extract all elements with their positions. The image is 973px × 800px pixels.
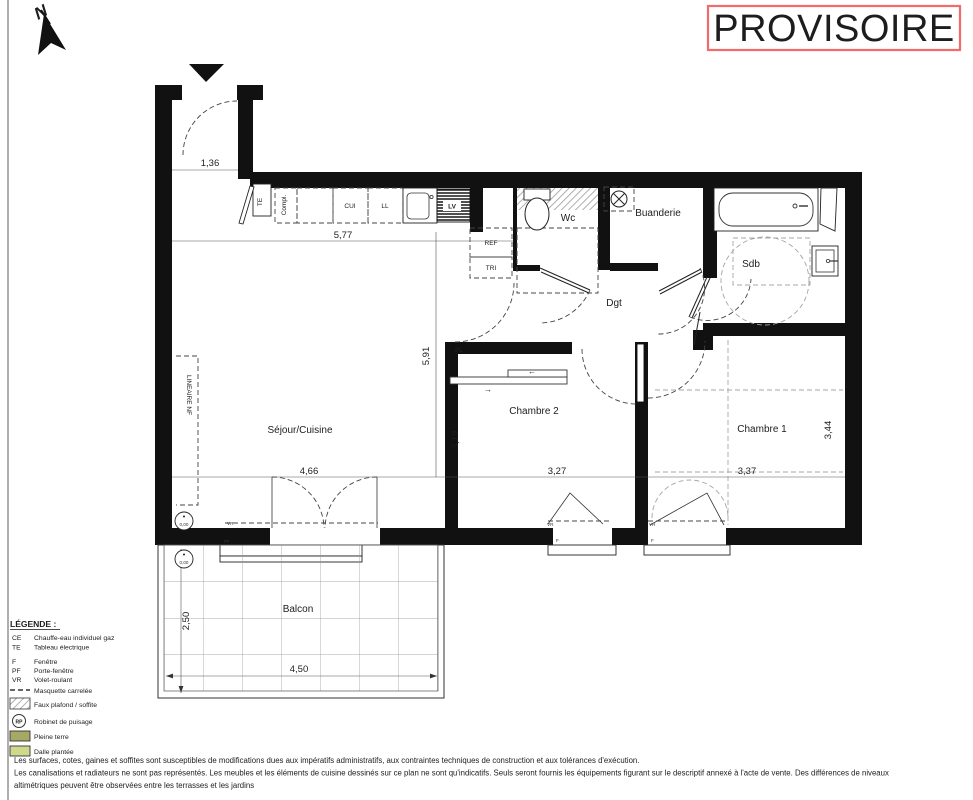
- pf-vr-label: VR: [227, 521, 234, 526]
- legend-label-pf: Porte-fenêtre: [34, 668, 74, 675]
- dim-balcon-w: 4,50: [290, 664, 309, 675]
- legend-rp-code: RP: [16, 720, 24, 726]
- provisoire-stamp: PROVISOIRE: [708, 6, 960, 50]
- chambre2-window: [548, 493, 616, 555]
- legend-label-vr: Volet-roulant: [34, 677, 72, 684]
- counter-unit: [297, 188, 333, 223]
- wc-area: [517, 188, 598, 323]
- dim-balcon-d: 2,50: [181, 612, 192, 631]
- placard-arrow-right: →: [484, 385, 492, 394]
- label-compl: Compl.: [281, 195, 288, 216]
- sink-basin: [407, 193, 429, 219]
- disclaimer-line-2: Les canalisations et radiateurs ne sont …: [14, 769, 889, 778]
- placard-arrow-left: ←: [528, 367, 536, 376]
- room-label-sdb: Sdb: [742, 259, 760, 270]
- legend-label-ce: Chauffe-eau individuel gaz: [34, 635, 115, 642]
- dim-entry: 1,36: [201, 158, 220, 169]
- room-label-chambre1: Chambre 1: [737, 424, 787, 435]
- room-label-dgt: Dgt: [606, 298, 622, 309]
- legend-label-f: Fenêtre: [34, 659, 58, 666]
- label-ll: LL: [381, 203, 389, 210]
- legend-label-dalle-plantee: Dalle plantée: [34, 749, 74, 756]
- label-cui: CUI: [344, 203, 355, 210]
- legend-code-pf: PF: [12, 668, 21, 675]
- sdb-duct: [820, 188, 837, 231]
- legend-pleine-terre-swatch: [10, 731, 30, 741]
- wc-floor-dash: [517, 228, 598, 293]
- room-label-balcon: Balcon: [283, 604, 314, 615]
- label-pl: PL: [455, 347, 463, 354]
- dim-chambre2-h: 3,19: [450, 431, 461, 450]
- entry-door-arc: [183, 101, 237, 155]
- label-te: TE: [257, 197, 264, 206]
- ch2-f-label: F: [556, 538, 559, 543]
- chambre1-window: [644, 493, 730, 555]
- dim-chambre2-w: 3,27: [548, 466, 567, 477]
- legend-dalle-plantee-swatch: [10, 746, 30, 756]
- placard-chambre2: [450, 370, 567, 384]
- legend-label-rp: Robinet de puisage: [34, 719, 93, 726]
- disclaimer-block: Les surfaces, cotes, gaines et soffites …: [14, 756, 889, 790]
- legend: LÉGENDE : CE Chauffe-eau individuel gaz …: [10, 619, 115, 756]
- legend-label-masquette: Masquette carrelée: [34, 688, 92, 695]
- turning-circle: [721, 237, 809, 325]
- label-lv: LV: [448, 204, 456, 211]
- label-tri: TRI: [486, 265, 497, 272]
- ch2-vr-label: VR: [547, 522, 554, 527]
- legend-code-te: TE: [12, 645, 21, 652]
- level-0-sejour: 0,00: [180, 522, 189, 527]
- dim-chambre1-h: 3,44: [823, 421, 834, 440]
- bathtub-inner: [719, 193, 813, 226]
- level-0-balcon: 0,00: [180, 560, 189, 565]
- balcony: [158, 545, 444, 698]
- floor-plan-sheet: N PROVISOIRE: [0, 0, 973, 800]
- room-label-wc: Wc: [561, 213, 575, 224]
- entry-door-leaf: [239, 186, 254, 224]
- label-ref: REF: [485, 240, 498, 247]
- dim-kitchen: 5,77: [334, 230, 353, 241]
- legend-title: LÉGENDE :: [10, 619, 56, 629]
- legend-code-f: F: [12, 659, 16, 666]
- toilet-bowl: [525, 198, 549, 230]
- stamp-text: PROVISOIRE: [713, 8, 955, 50]
- ch1-vr-label: VR: [649, 522, 656, 527]
- ch1-f-label: F: [651, 538, 654, 543]
- room-label-sejour: Séjour/Cuisine: [267, 425, 332, 436]
- legend-hatch-icon: [10, 698, 30, 709]
- dim-sejour-h: 5,91: [421, 347, 432, 366]
- room-label-buanderie: Buanderie: [635, 208, 681, 219]
- floor-plan-drawing: N PROVISOIRE: [0, 0, 973, 800]
- legend-label-faux-plafond: Faux plafond / soffite: [34, 702, 97, 709]
- disclaimer-line-1: Les surfaces, cotes, gaines et soffites …: [14, 756, 639, 765]
- entry-marker-icon: [189, 64, 224, 82]
- legend-label-te: Tableau électrique: [34, 645, 89, 652]
- pf-pf-label: PF: [224, 539, 230, 544]
- dim-chambre1-w: 3,37: [738, 466, 757, 477]
- room-label-chambre2: Chambre 2: [509, 406, 559, 417]
- label-lineaire-nf: LINEAIRE NF: [185, 375, 192, 415]
- legend-code-vr: VR: [12, 677, 22, 684]
- dim-sejour-w: 4,66: [300, 466, 319, 477]
- legend-code-ce: CE: [12, 635, 22, 642]
- north-arrow-icon: N: [31, 1, 66, 55]
- chambre2-door-leaf: [637, 344, 644, 402]
- legend-label-pleine-terre: Pleine terre: [34, 734, 69, 741]
- disclaimer-line-3: altimétriques peuvent être observées ent…: [14, 781, 254, 790]
